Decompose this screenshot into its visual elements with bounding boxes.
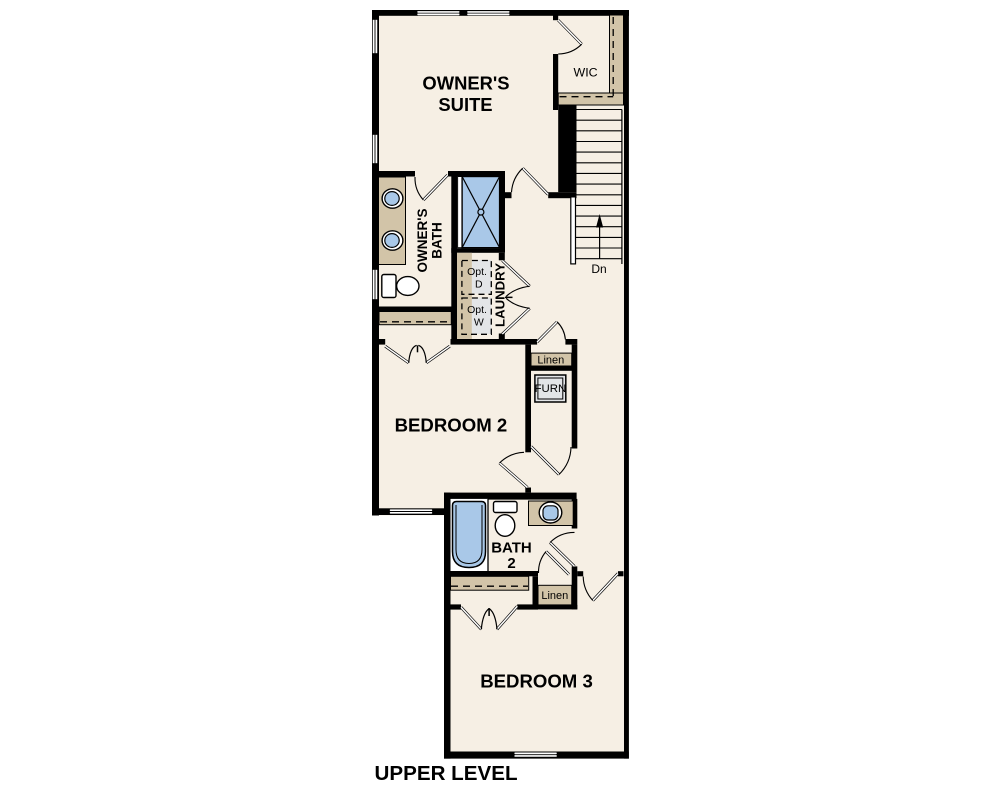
svg-text:Linen: Linen: [537, 355, 564, 367]
svg-text:OWNER'S: OWNER'S: [422, 73, 509, 94]
svg-text:FURN: FURN: [535, 383, 567, 395]
svg-text:BATH: BATH: [491, 540, 532, 557]
svg-text:LAUNDRY: LAUNDRY: [492, 263, 507, 327]
svg-text:SUITE: SUITE: [438, 94, 492, 115]
svg-text:BATH: BATH: [429, 222, 444, 259]
svg-text:2: 2: [507, 555, 515, 572]
svg-text:Dn: Dn: [591, 262, 606, 276]
svg-text:BEDROOM 2: BEDROOM 2: [395, 415, 508, 436]
svg-text:WIC: WIC: [574, 65, 598, 79]
svg-text:D: D: [475, 278, 483, 290]
svg-text:W: W: [474, 317, 484, 329]
svg-text:BEDROOM 3: BEDROOM 3: [480, 670, 593, 691]
svg-text:OWNER'S: OWNER'S: [415, 209, 430, 273]
svg-text:Linen: Linen: [541, 590, 568, 602]
svg-text:Opt.: Opt.: [467, 304, 487, 316]
svg-text:Opt.: Opt.: [467, 266, 487, 278]
svg-text:UPPER LEVEL: UPPER LEVEL: [375, 762, 518, 785]
